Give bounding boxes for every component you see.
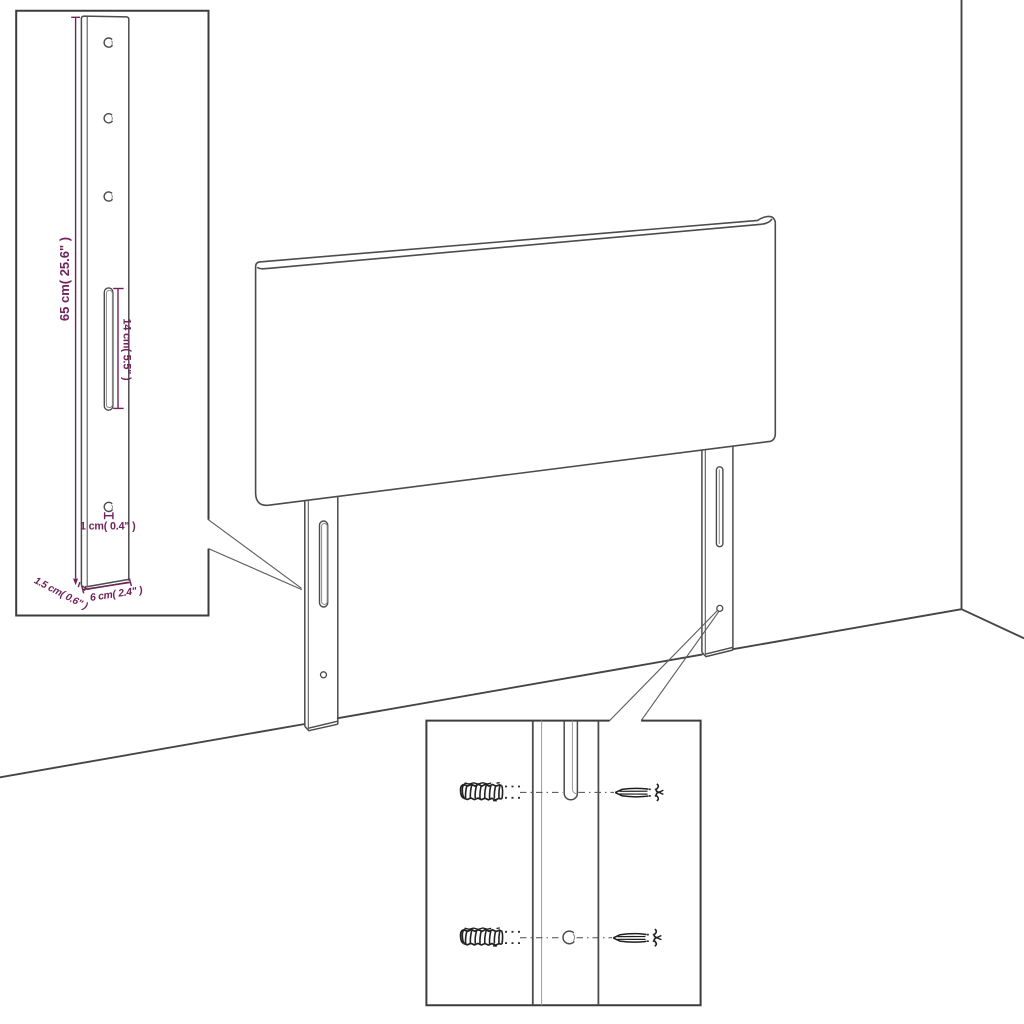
svg-text:14 cm( 5.5" ): 14 cm( 5.5" ) — [120, 319, 132, 382]
svg-text:1 cm( 0.4" ): 1 cm( 0.4" ) — [80, 520, 136, 532]
svg-text:65 cm( 25.6" ): 65 cm( 25.6" ) — [57, 237, 72, 321]
